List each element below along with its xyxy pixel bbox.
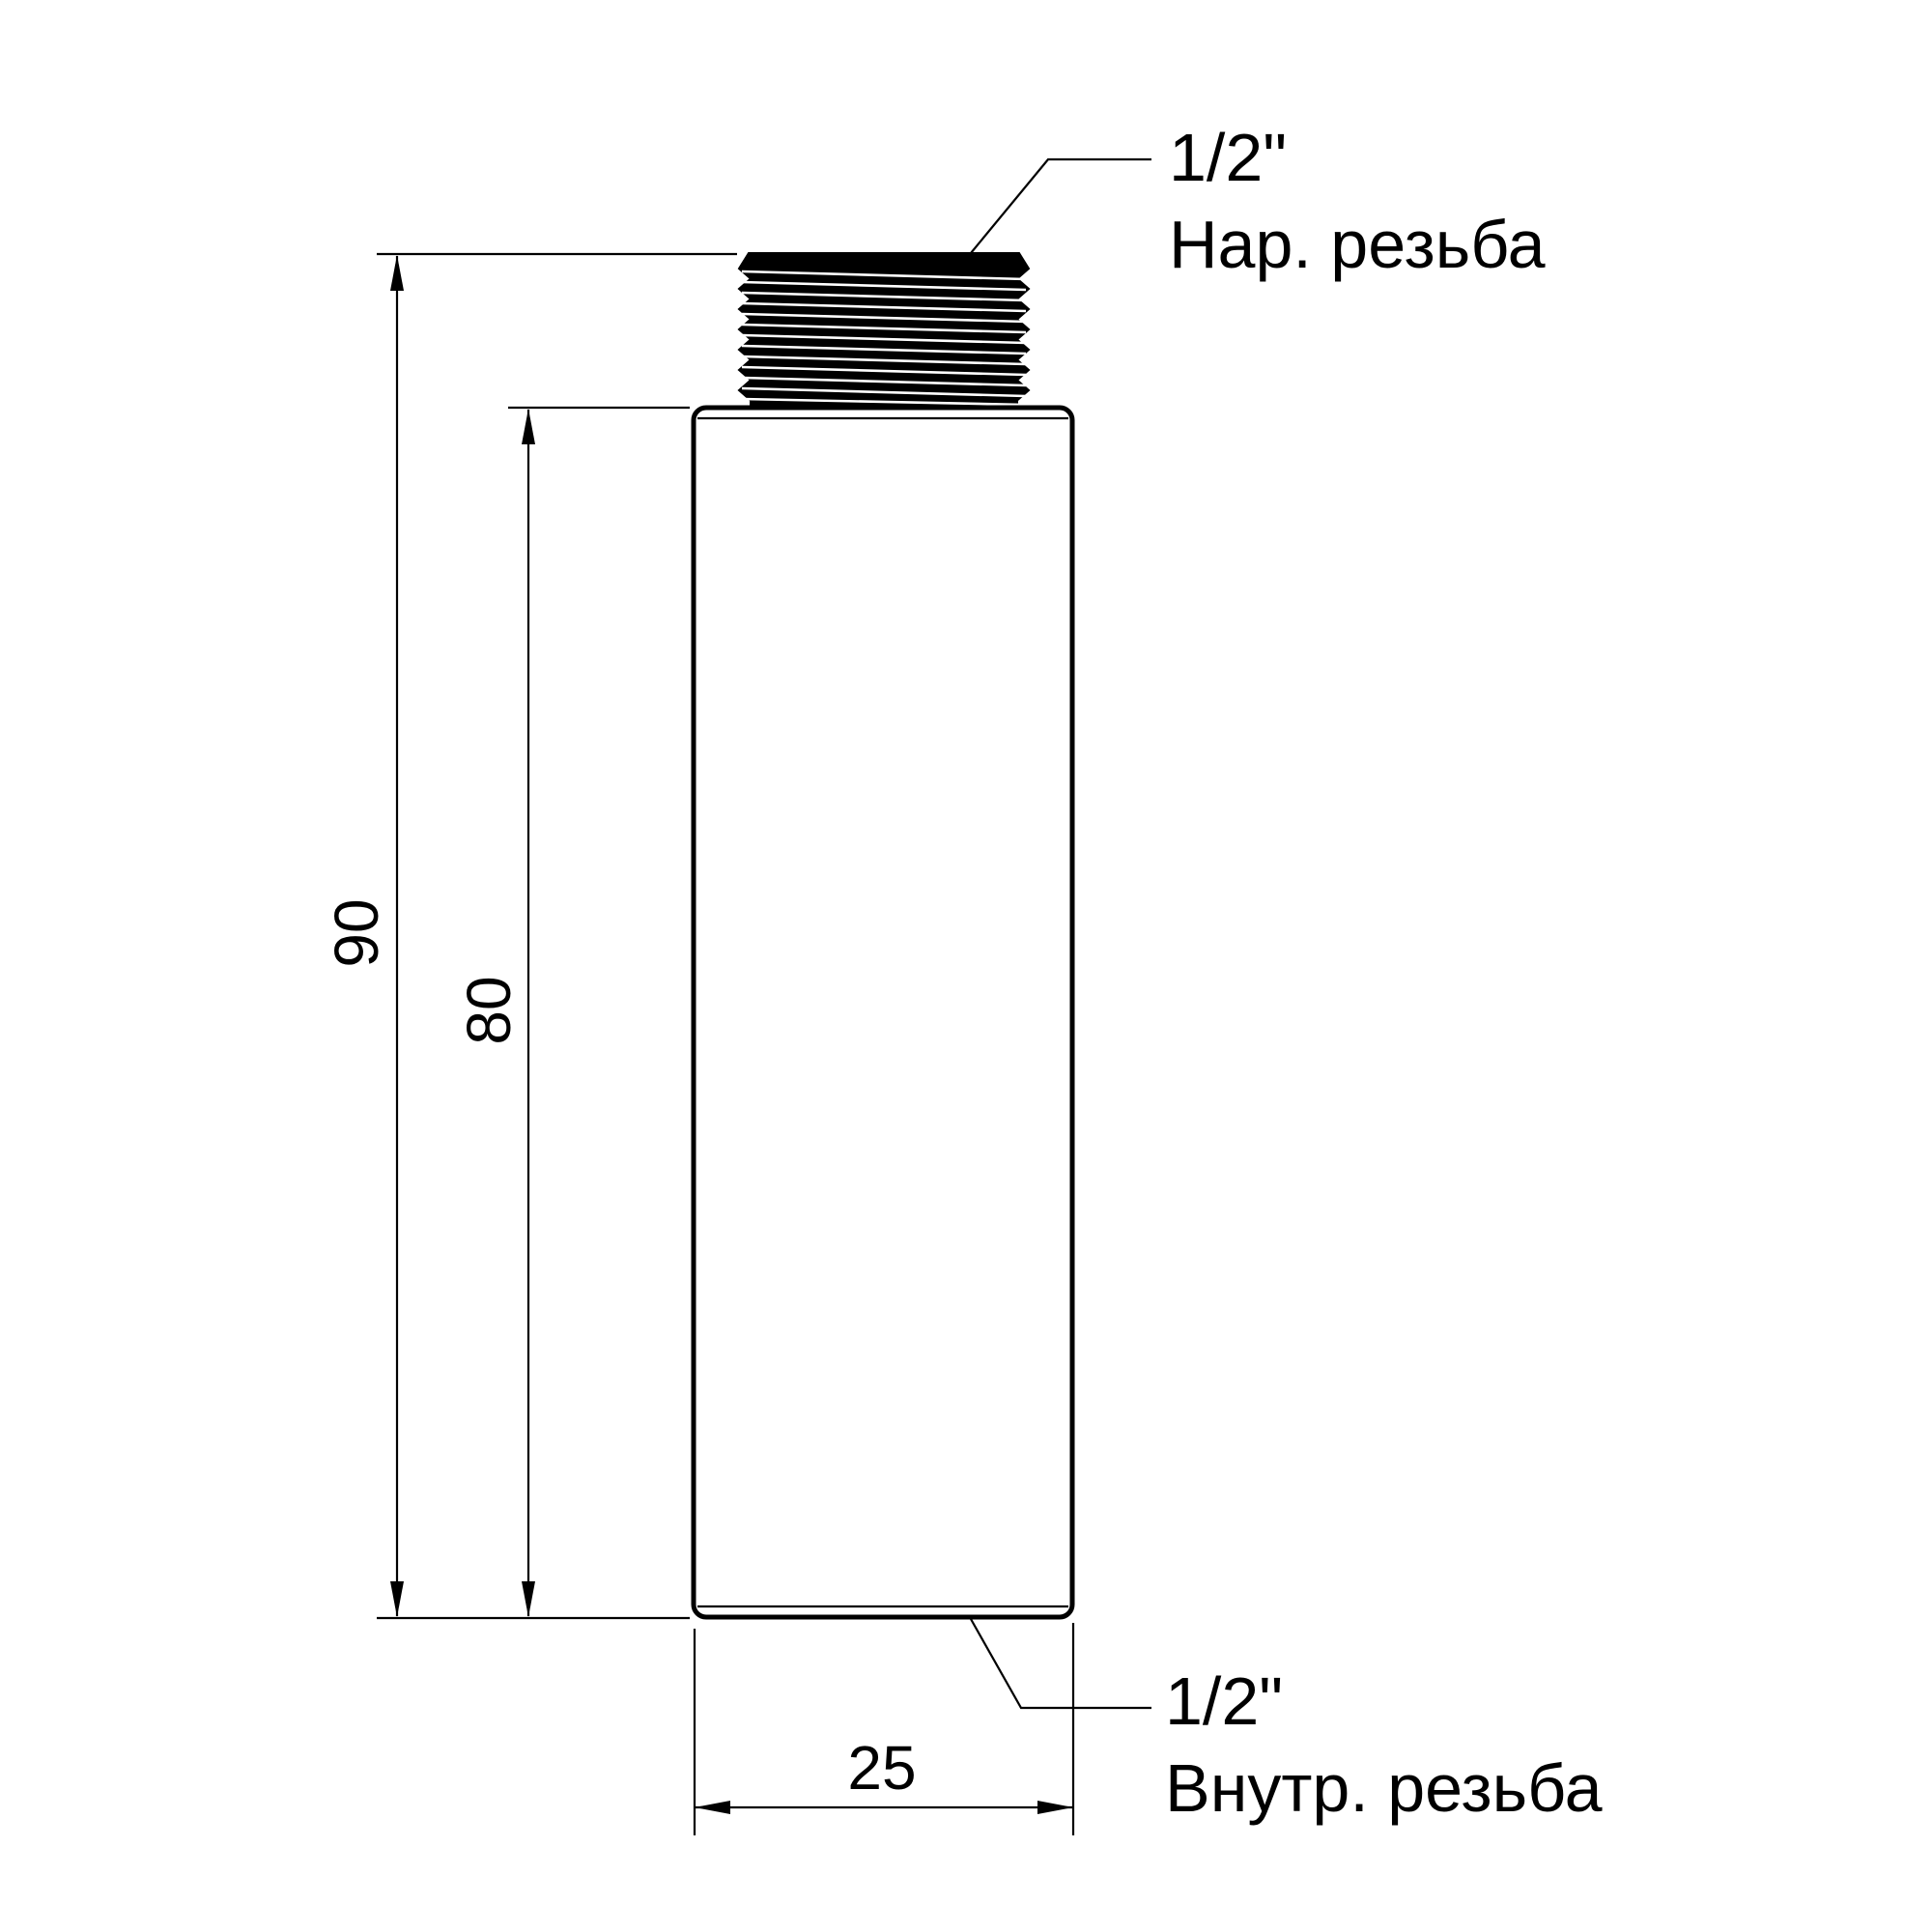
dimension-25 <box>695 1623 1073 1835</box>
dimension-90 <box>377 254 737 1617</box>
dim-value-total-height: 90 <box>326 898 387 967</box>
technical-drawing-canvas: 90 80 25 1/2" Нар. резьба 1/2" Внутр. ре… <box>0 0 1932 1932</box>
arrow-80-bottom <box>522 1581 535 1617</box>
top-thread-type-label: Нар. резьба <box>1169 201 1546 288</box>
bottom-thread-size: 1/2" <box>1165 1658 1603 1745</box>
leader-top-thread <box>971 159 1151 253</box>
fitting-body <box>694 408 1072 1617</box>
arrow-90-bottom <box>390 1581 404 1617</box>
top-thread-size: 1/2" <box>1169 114 1546 201</box>
fitting-drawing <box>0 0 1932 1932</box>
dimension-80 <box>377 408 690 1618</box>
arrow-25-right <box>1037 1801 1073 1814</box>
dim-value-body-height: 80 <box>458 976 520 1044</box>
leader-bottom-thread <box>971 1619 1151 1708</box>
bottom-thread-type-label: Внутр. резьба <box>1165 1745 1603 1832</box>
body-outline <box>694 408 1072 1617</box>
arrow-80-top <box>522 409 535 444</box>
leader-line-bottom <box>971 1619 1151 1708</box>
male-thread <box>739 253 1029 408</box>
arrow-25-left <box>695 1801 730 1814</box>
dim-value-body-width: 25 <box>847 1737 916 1799</box>
leader-line-top <box>971 159 1151 253</box>
arrow-90-top <box>390 255 404 291</box>
callout-top-thread: 1/2" Нар. резьба <box>1169 114 1546 288</box>
callout-bottom-thread: 1/2" Внутр. резьба <box>1165 1658 1603 1832</box>
